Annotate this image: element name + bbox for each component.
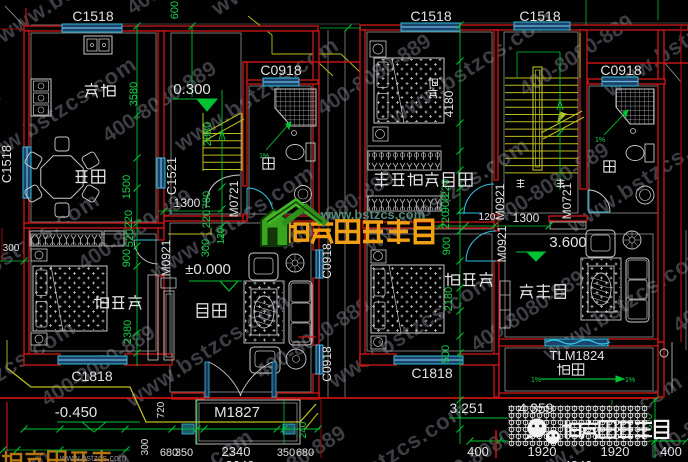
svg-text:350: 350 (175, 447, 193, 459)
svg-text:1500: 1500 (121, 175, 133, 199)
svg-text:C1818: C1818 (71, 368, 112, 384)
svg-text:M0921: M0921 (159, 239, 173, 276)
svg-text:2180: 2180 (443, 287, 455, 311)
svg-text:www.bstzcs.com: www.bstzcs.com (320, 207, 425, 222)
svg-text:220: 220 (201, 210, 213, 228)
svg-text:720: 720 (156, 401, 167, 418)
svg-text:M0721: M0721 (227, 180, 241, 217)
svg-text:1300: 1300 (513, 211, 540, 225)
svg-text:3640: 3640 (226, 458, 255, 462)
svg-text:120: 120 (216, 227, 227, 244)
svg-text:1920: 1920 (601, 444, 630, 459)
svg-text:780: 780 (201, 191, 213, 209)
svg-text:C0918: C0918 (260, 62, 301, 78)
svg-text:C0918: C0918 (320, 243, 334, 279)
svg-text:2880: 2880 (202, 122, 214, 146)
svg-text:220: 220 (440, 211, 452, 229)
svg-text:1920: 1920 (528, 444, 557, 459)
svg-text:350: 350 (277, 447, 295, 459)
svg-text:300: 300 (200, 239, 212, 257)
svg-text:M1827: M1827 (214, 404, 260, 421)
svg-text:4180: 4180 (442, 90, 456, 117)
svg-text:C1518: C1518 (0, 145, 14, 183)
svg-text:300: 300 (140, 438, 151, 455)
svg-text:240: 240 (298, 421, 309, 438)
svg-text:C0918: C0918 (320, 346, 334, 382)
svg-text:0.300: 0.300 (173, 81, 211, 98)
svg-text:www.bstzcs.com: www.bstzcs.com (59, 453, 127, 462)
svg-text:3.251: 3.251 (449, 400, 484, 416)
svg-text:520: 520 (124, 229, 136, 247)
svg-text:1%: 1% (595, 137, 605, 144)
svg-text:1%: 1% (259, 153, 269, 160)
svg-text:M0921: M0921 (495, 225, 509, 262)
svg-text:C1518: C1518 (410, 8, 451, 24)
svg-text:1300: 1300 (174, 196, 201, 210)
svg-text:-0.450: -0.450 (55, 404, 98, 421)
svg-text:TLM1824: TLM1824 (550, 348, 605, 363)
svg-text:400: 400 (660, 444, 682, 459)
svg-text:300: 300 (3, 243, 20, 254)
svg-text:C1518: C1518 (519, 8, 560, 24)
svg-text:1%: 1% (531, 377, 541, 384)
svg-text:4240: 4240 (564, 458, 593, 462)
svg-text:1%: 1% (625, 377, 635, 384)
svg-text:M0721: M0721 (560, 182, 574, 219)
svg-text:C0918: C0918 (600, 62, 641, 78)
svg-text:400: 400 (467, 444, 489, 459)
svg-text:2340: 2340 (222, 444, 251, 459)
svg-text:2380: 2380 (122, 320, 134, 344)
svg-text:C1818: C1818 (411, 365, 452, 381)
svg-text:680: 680 (296, 447, 314, 459)
svg-text:220: 220 (123, 210, 135, 228)
svg-text:C1518: C1518 (72, 8, 113, 24)
svg-text:600: 600 (169, 1, 181, 19)
svg-text:900: 900 (441, 237, 453, 255)
svg-text:3.600: 3.600 (549, 234, 587, 251)
svg-text:900: 900 (440, 195, 452, 213)
svg-text:±0.000: ±0.000 (185, 261, 231, 278)
svg-text:4.359: 4.359 (518, 400, 553, 416)
svg-text:M0921: M0921 (493, 183, 507, 220)
svg-text:3580: 3580 (128, 82, 140, 106)
svg-text:900: 900 (121, 249, 133, 267)
svg-text:500: 500 (440, 345, 452, 363)
svg-text:C1521: C1521 (164, 157, 179, 195)
